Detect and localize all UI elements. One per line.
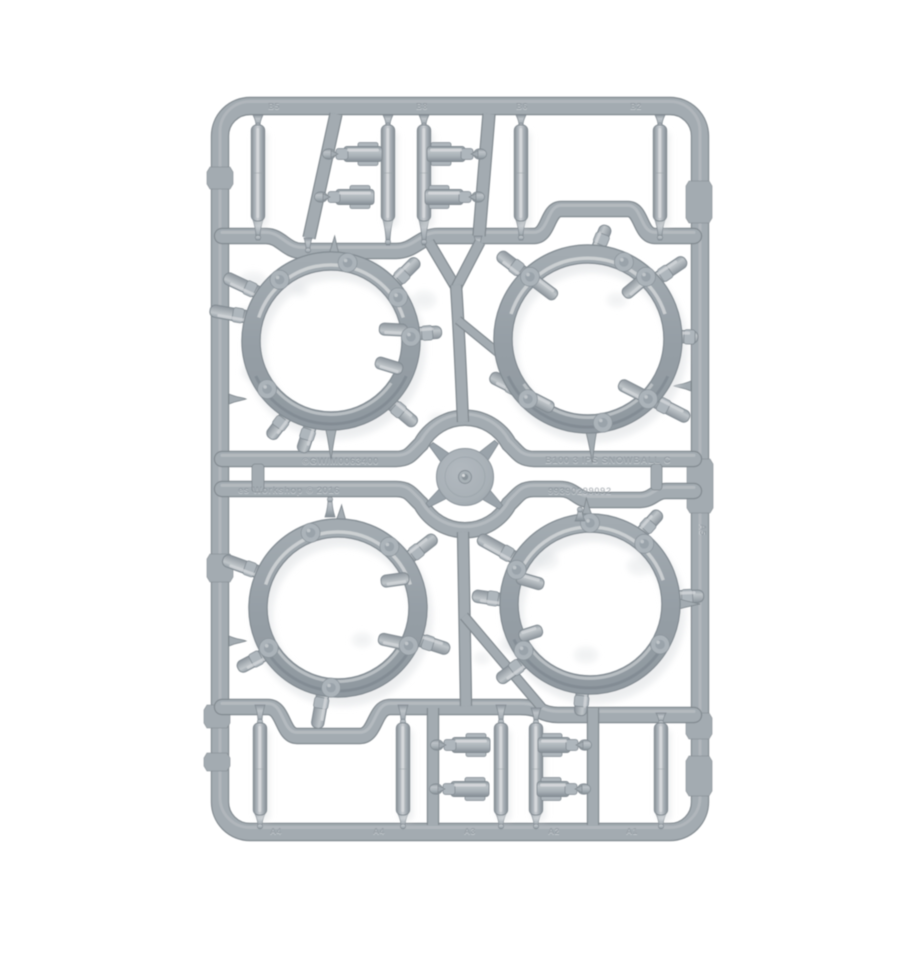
svg-text:A1: A1 (626, 826, 638, 836)
svg-text:©GW/M0063400: ©GW/M0063400 (302, 456, 379, 467)
svg-text:A4: A4 (373, 826, 385, 836)
svg-text:A4: A4 (270, 826, 282, 836)
svg-text:A3: A3 (464, 826, 476, 836)
svg-text:B5: B5 (268, 101, 280, 111)
svg-text:B100 3 IPS SNOWBALL C: B100 3 IPS SNOWBALL C (545, 455, 671, 466)
svg-text:B2: B2 (630, 101, 642, 111)
svg-text:B8: B8 (416, 101, 428, 111)
svg-text:A5: A5 (698, 524, 708, 536)
svg-text:99390299092: 99390299092 (548, 486, 612, 497)
svg-text:es Workshop © 2016: es Workshop © 2016 (238, 485, 340, 496)
svg-text:B6: B6 (516, 101, 528, 111)
svg-text:A2: A2 (548, 826, 560, 836)
